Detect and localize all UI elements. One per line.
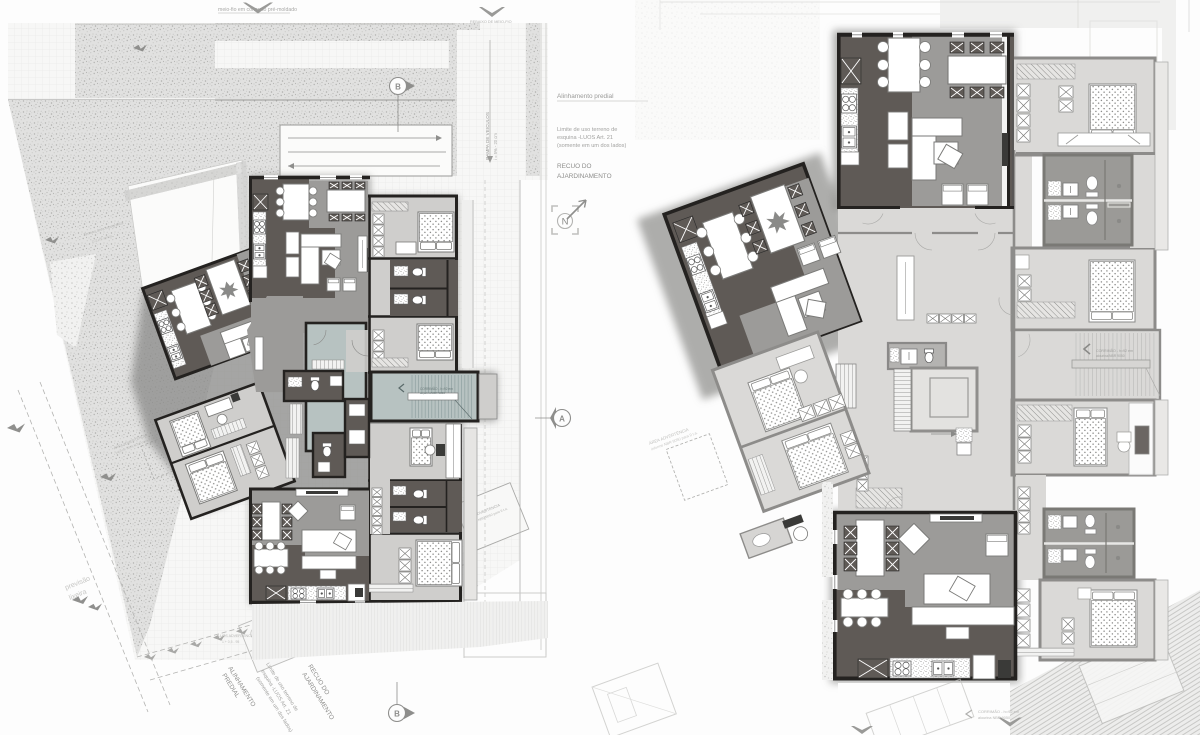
svg-text:B: B xyxy=(395,83,401,92)
svg-text:Limite de uso terreno de: Limite de uso terreno de xyxy=(557,127,617,133)
svg-text:REBAIXO DE MEIO-FIO: REBAIXO DE MEIO-FIO xyxy=(470,20,512,24)
svg-text:i = 5% - 20 cm: i = 5% - 20 cm xyxy=(493,133,498,160)
svg-text:CORRIMÃO - h=92 em: CORRIMÃO - h=92 em xyxy=(978,709,1020,714)
svg-text:(somente em um dos lados): (somente em um dos lados) xyxy=(557,143,626,149)
svg-text:AJARDINAMENTO: AJARDINAMENTO xyxy=(557,173,612,180)
svg-text:alourina/NBR 9050: alourina/NBR 9050 xyxy=(1096,354,1125,358)
svg-text:Alinhamento predial: Alinhamento predial xyxy=(557,93,614,100)
svg-text:RECUO DO: RECUO DO xyxy=(557,163,591,170)
svg-text:alça/cm/NBR 9050: alça/cm/NBR 9050 xyxy=(420,391,445,395)
svg-text:alourina NBR 9050: alourina NBR 9050 xyxy=(978,716,1010,720)
svg-text:A: A xyxy=(559,415,565,424)
svg-text:RAMPA DE VEICULOS: RAMPA DE VEICULOS xyxy=(485,112,490,160)
svg-text:esquina -LUOS Art. 21: esquina -LUOS Art. 21 xyxy=(557,135,613,141)
svg-text:1 + 0,5 - 95: 1 + 0,5 - 95 xyxy=(222,640,239,644)
svg-text:CORRIMÃO - h=92 em: CORRIMÃO - h=92 em xyxy=(1096,348,1133,353)
svg-text:B: B xyxy=(394,710,400,719)
